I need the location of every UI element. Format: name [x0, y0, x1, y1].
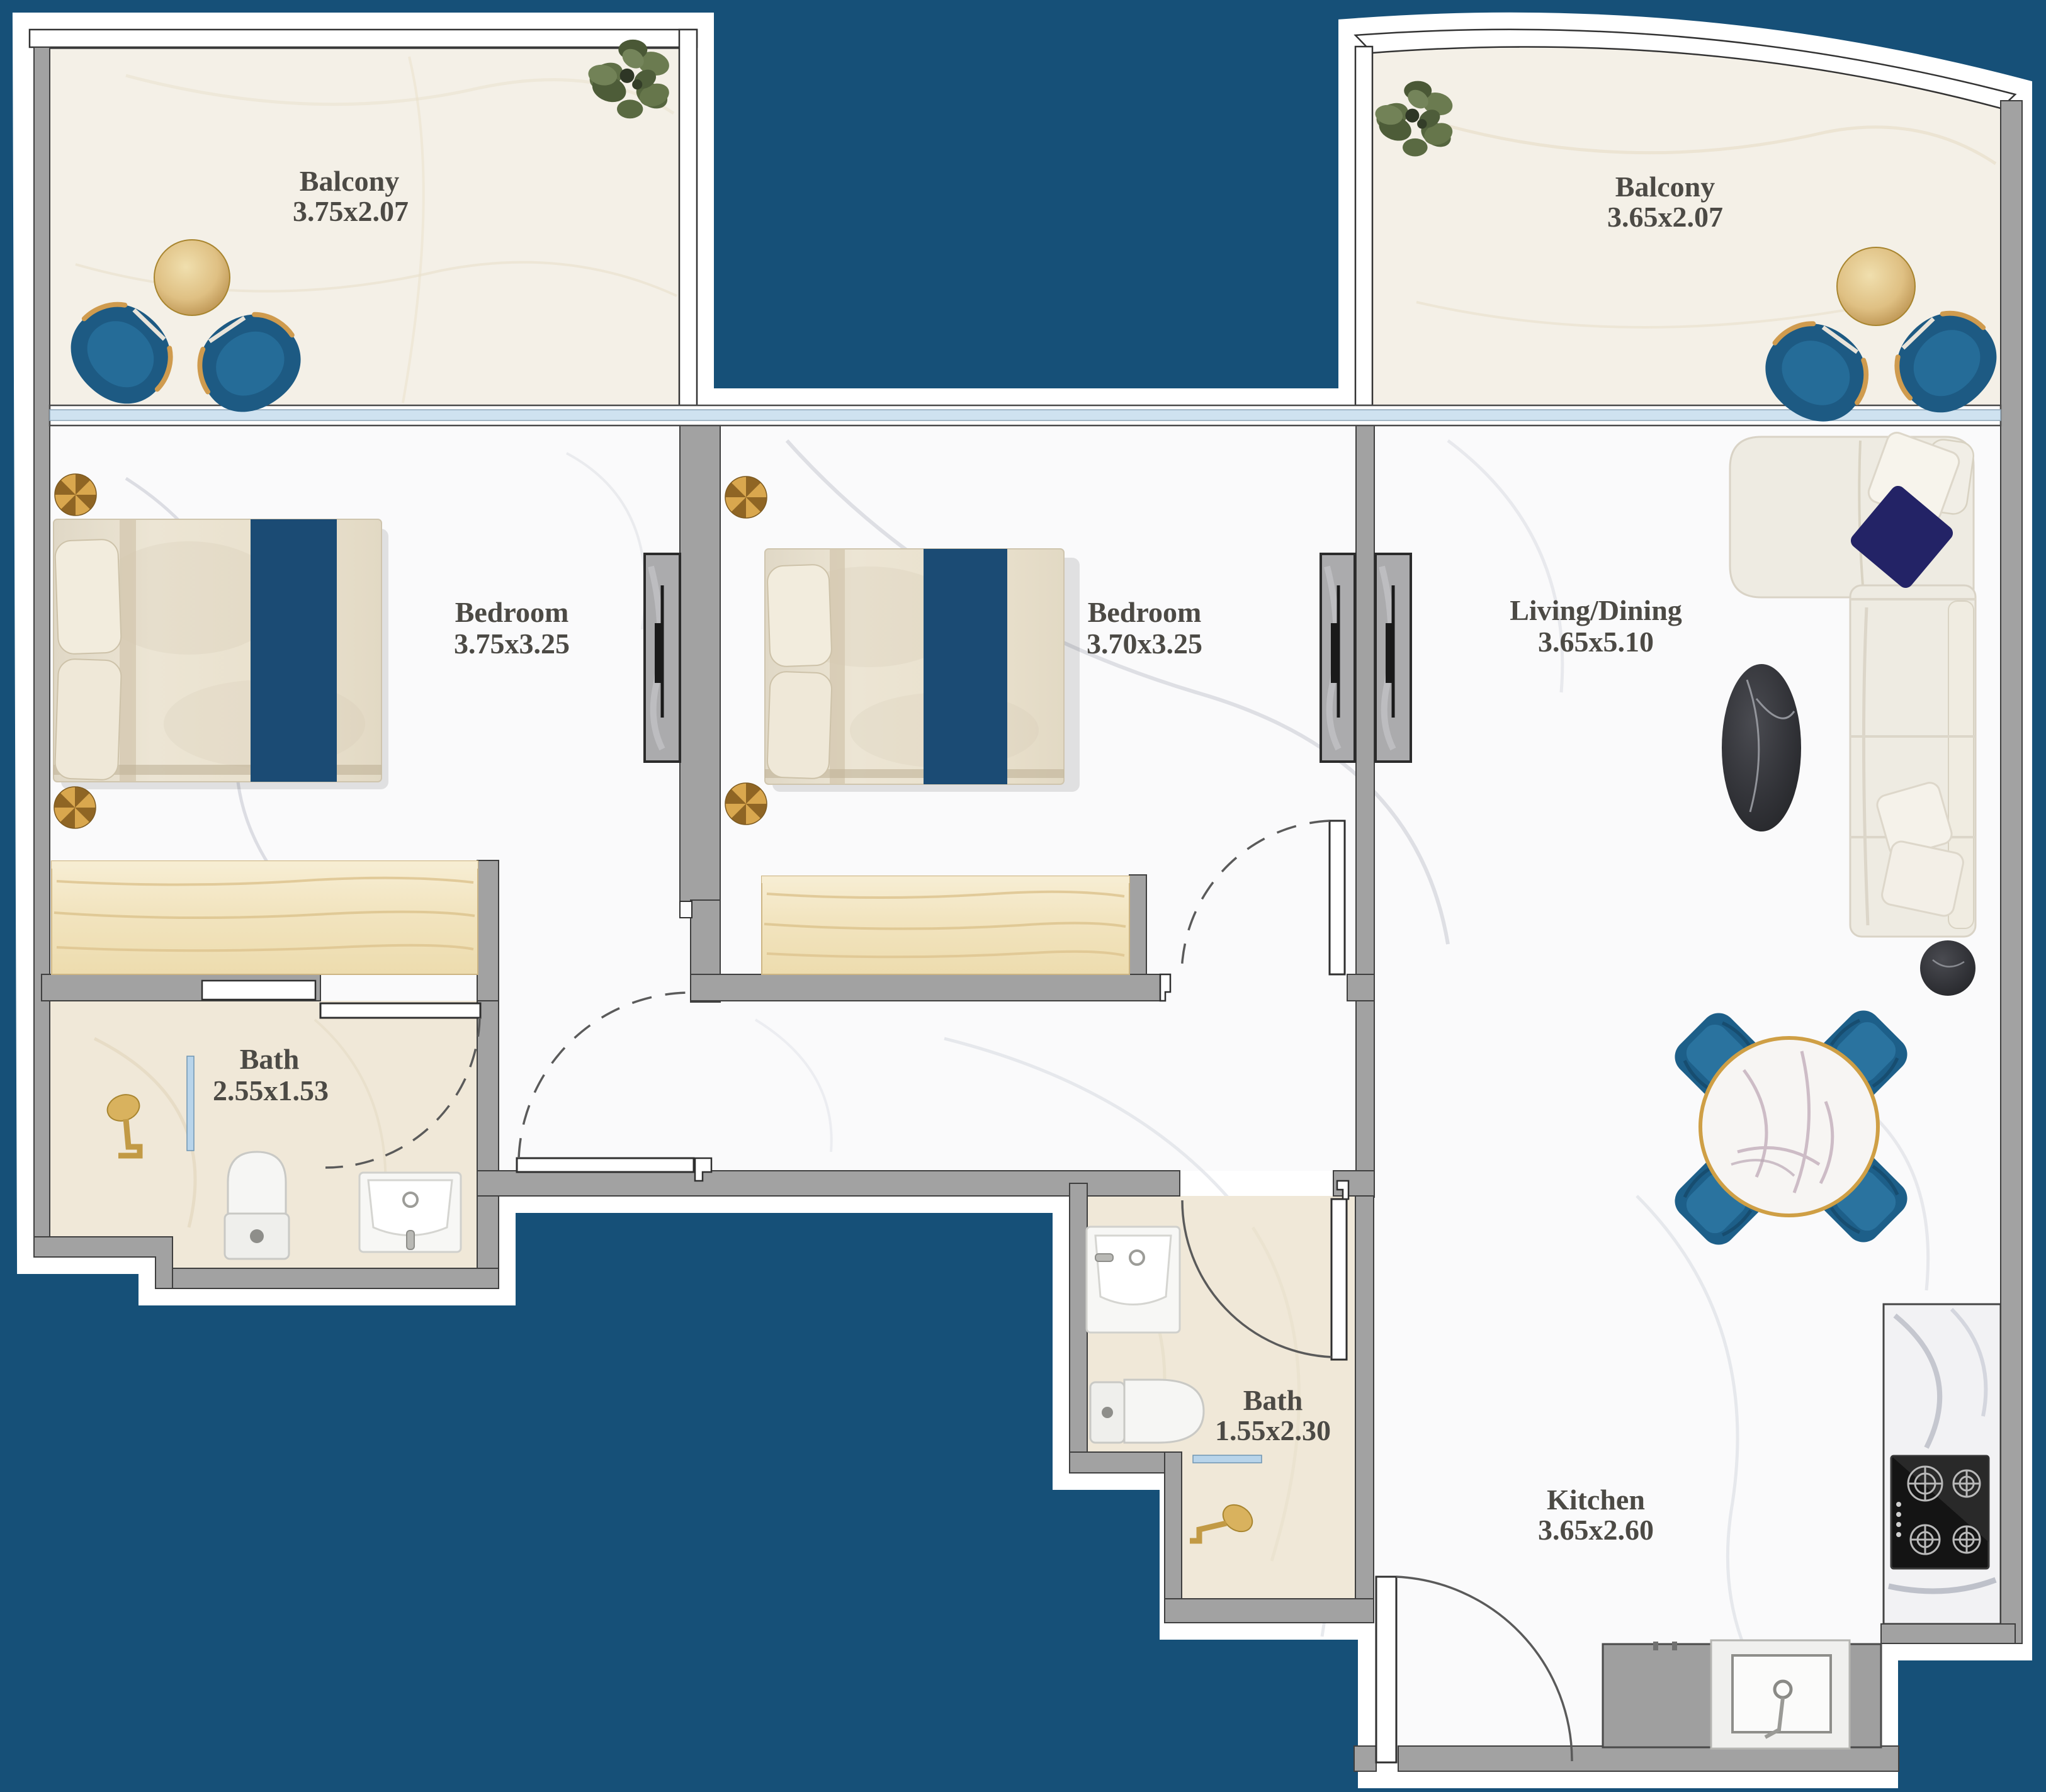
svg-text:3.65x5.10: 3.65x5.10 [1538, 626, 1654, 658]
svg-text:3.70x3.25: 3.70x3.25 [1087, 628, 1202, 660]
svg-text:3.75x3.25: 3.75x3.25 [454, 628, 570, 660]
svg-text:3.75x2.07: 3.75x2.07 [293, 195, 409, 227]
svg-text:3.65x2.07: 3.65x2.07 [1607, 201, 1723, 233]
svg-text:Living/Dining: Living/Dining [1510, 594, 1682, 626]
svg-text:Balcony: Balcony [300, 165, 399, 197]
svg-text:Bedroom: Bedroom [455, 596, 569, 628]
svg-text:Balcony: Balcony [1615, 171, 1715, 203]
svg-text:Bath: Bath [240, 1043, 300, 1075]
svg-text:3.65x2.60: 3.65x2.60 [1538, 1514, 1654, 1546]
svg-text:1.55x2.30: 1.55x2.30 [1215, 1414, 1331, 1446]
svg-text:Bath: Bath [1243, 1384, 1303, 1416]
svg-text:Kitchen: Kitchen [1547, 1484, 1645, 1516]
svg-text:Bedroom: Bedroom [1088, 596, 1202, 628]
svg-text:2.55x1.53: 2.55x1.53 [213, 1074, 329, 1107]
